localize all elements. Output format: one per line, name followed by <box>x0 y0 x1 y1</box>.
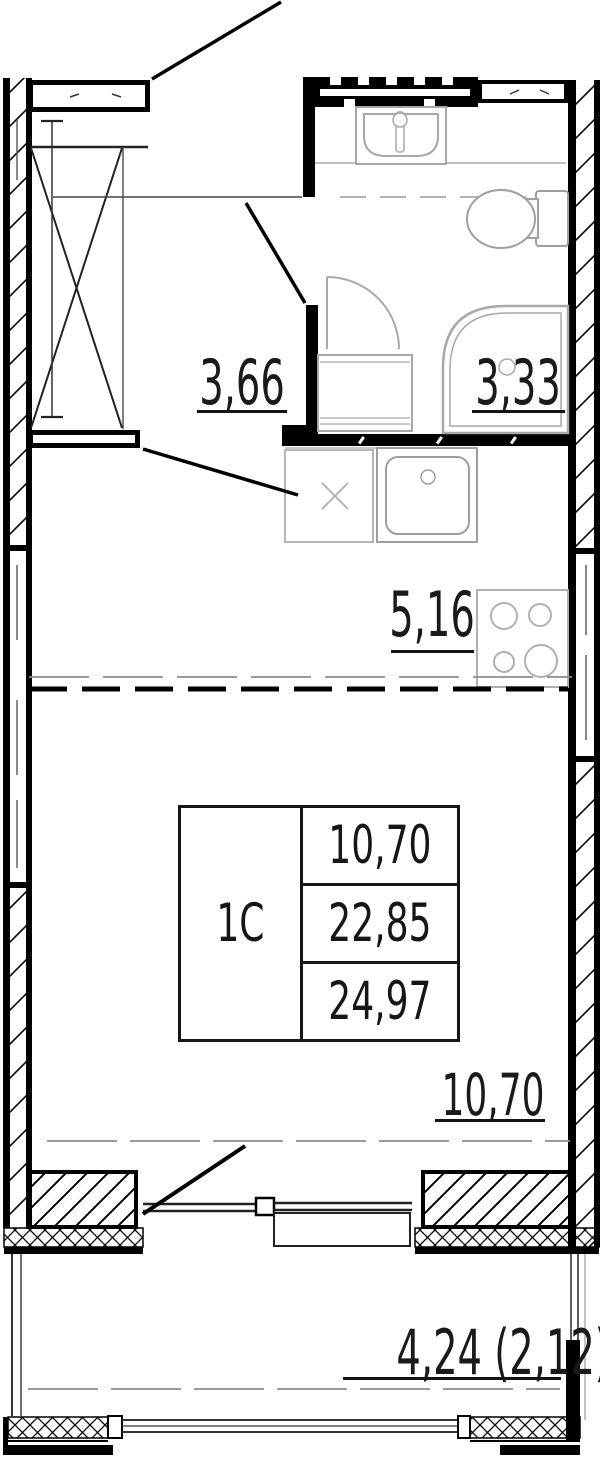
floorplan-drawing <box>0 0 600 1473</box>
total-area-cell: 24,97 <box>303 964 457 1039</box>
wall-top-right <box>478 80 568 103</box>
kitchen-counter <box>285 448 477 542</box>
wall-left <box>3 78 32 1228</box>
balcony-area-label: 4,24 (2,12) <box>331 1322 571 1384</box>
apartment-area-cell: 22,85 <box>303 886 457 964</box>
door-window-post <box>256 1198 274 1215</box>
appliance-slot <box>285 450 373 542</box>
bathroom-sink <box>356 107 446 164</box>
area-underline <box>343 1377 561 1380</box>
glazing-post <box>458 1416 470 1438</box>
floorplan: 3,66 3,33 5,16 10,70 4,24 (2,12) 1С 10,7… <box>0 0 600 1473</box>
bathroom-door <box>327 277 399 349</box>
hallway-area-label: 3,66 <box>162 352 322 414</box>
bathroom-area-label: 3,33 <box>438 352 598 414</box>
wardrobe <box>30 121 148 429</box>
balcony-door <box>143 1146 256 1214</box>
toilet <box>467 190 568 248</box>
room-area-label: 10,70 <box>410 1066 570 1124</box>
unit-type-label: 1С <box>205 893 276 954</box>
wall-closet-bottom <box>28 430 140 448</box>
window <box>274 1203 412 1246</box>
wall-right <box>568 80 600 1247</box>
info-table: 1С 10,70 22,85 24,97 <box>178 805 460 1042</box>
area-underline <box>435 1119 545 1122</box>
glazing-post <box>108 1416 122 1438</box>
area-underline <box>472 410 565 413</box>
wall-top-left <box>28 80 150 112</box>
kitchen-sink <box>377 448 477 542</box>
kitchen-area-label: 5,16 <box>352 584 512 646</box>
washing-machine <box>318 355 412 431</box>
living-area-cell: 10,70 <box>303 808 457 886</box>
leader-lines <box>143 2 305 495</box>
area-underline <box>197 410 287 413</box>
area-underline <box>391 650 474 653</box>
